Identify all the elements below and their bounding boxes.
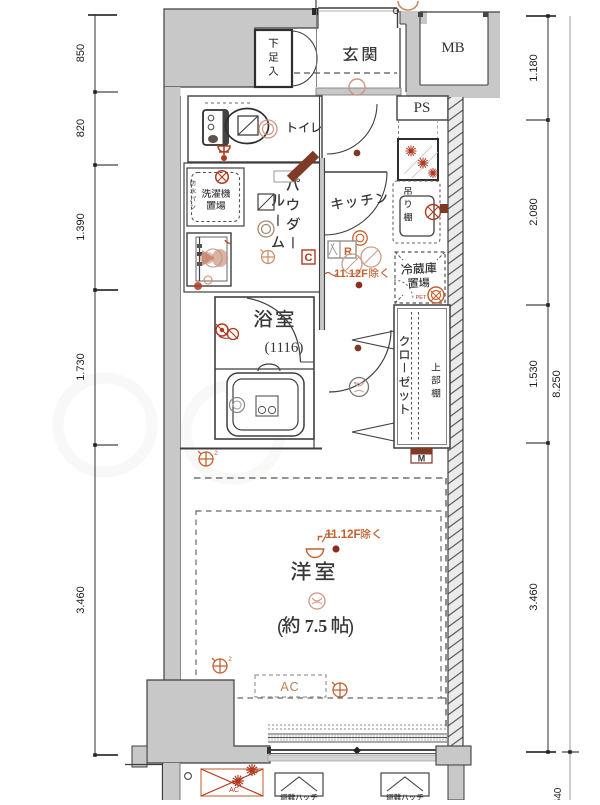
svg-text:C: C [305, 252, 313, 264]
svg-text:PS: PS [414, 100, 431, 116]
svg-text:): ) [348, 617, 354, 638]
svg-text:2.080: 2.080 [528, 198, 540, 226]
svg-text:M: M [418, 454, 426, 464]
svg-text:3.460: 3.460 [75, 586, 87, 614]
svg-text:AC: AC [280, 680, 299, 694]
svg-text:(: ( [277, 617, 284, 638]
svg-text:MB: MB [441, 40, 464, 56]
svg-text:640: 640 [553, 787, 564, 800]
svg-text:1.730: 1.730 [75, 353, 87, 381]
svg-text:1.390: 1.390 [75, 213, 87, 241]
svg-text:7.5: 7.5 [305, 616, 328, 636]
svg-text:2: 2 [214, 450, 218, 457]
svg-text:1.530: 1.530 [528, 360, 540, 388]
svg-text:1.180: 1.180 [528, 54, 540, 82]
svg-text:11.12F: 11.12F [334, 268, 368, 280]
svg-text:850: 850 [75, 44, 87, 62]
svg-text:11.12F: 11.12F [325, 529, 360, 541]
svg-text:3.460: 3.460 [528, 583, 540, 611]
svg-text:820: 820 [75, 119, 87, 137]
svg-text:AC: AC [229, 787, 239, 794]
svg-text:8.250: 8.250 [551, 370, 563, 398]
svg-text:2: 2 [228, 656, 232, 663]
svg-text:PET: PET [416, 295, 427, 301]
